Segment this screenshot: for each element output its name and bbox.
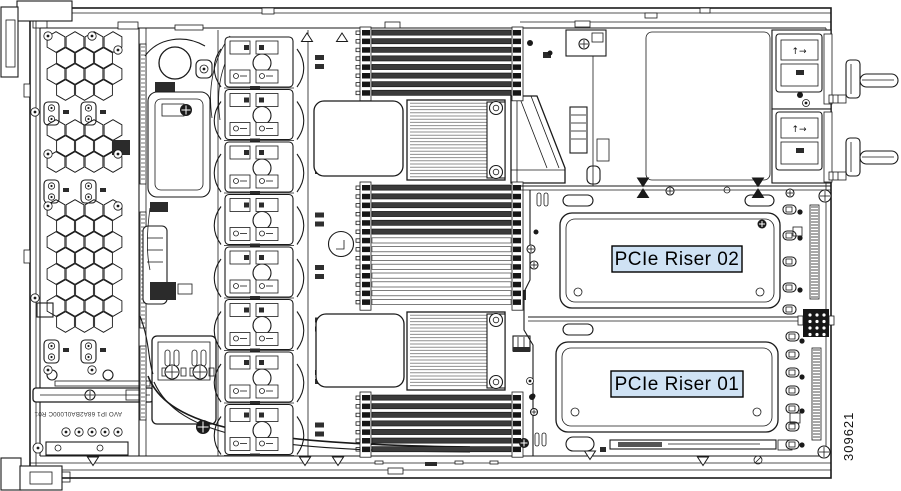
dimm-slot — [372, 220, 511, 225]
psu-2: ↑→ — [772, 109, 898, 183]
rear-slot — [786, 350, 799, 359]
blower-opening — [159, 47, 191, 79]
handling-slot — [563, 324, 593, 335]
bottom-bracket — [46, 442, 128, 455]
figure-number: 309621 — [841, 412, 856, 461]
psu-bay — [646, 30, 772, 183]
handling-slot — [563, 195, 593, 206]
screw — [527, 40, 533, 46]
triangle-marker — [300, 457, 311, 466]
dimm-slot — [372, 56, 511, 61]
dimm-slot — [372, 247, 511, 252]
dimm-bank — [356, 392, 523, 457]
dimm-slot — [372, 273, 511, 278]
cpu-socket-covers — [314, 101, 404, 387]
dimm-slot — [372, 255, 511, 260]
rear-screw — [797, 287, 802, 292]
rear-slot — [783, 283, 796, 292]
fan-connector — [315, 432, 324, 437]
fan-module — [214, 300, 304, 352]
dimm-bank — [356, 27, 523, 101]
pcie-riser-01: PCIe Riser 01 — [556, 342, 778, 432]
dimm-slot — [372, 211, 511, 216]
dimm-slot — [372, 64, 511, 69]
heatsink-screw — [490, 102, 503, 115]
rear-io-slots — [783, 205, 805, 449]
dimm-slot — [372, 90, 511, 95]
cpu-heatsink — [407, 100, 505, 180]
honeycomb-port — [803, 309, 829, 337]
fan-module — [214, 195, 304, 247]
rear-slot — [783, 305, 796, 314]
triangle-marker — [333, 457, 344, 466]
chassis-diagram: AVO IP1 68A2BA0L000C R01 — [0, 0, 901, 491]
fan-modules — [214, 37, 304, 457]
rear-screw — [797, 209, 802, 214]
dimm-slot — [372, 47, 511, 52]
cpu-heatsink — [407, 312, 505, 390]
psu-1: ↑→ — [772, 30, 898, 109]
fan-connector — [315, 64, 324, 69]
pcie-riser-02: PCIe Riser 02 — [560, 213, 780, 308]
riser01-bottom-slot-bar — [566, 437, 792, 464]
screw-boss — [44, 180, 59, 203]
rear-slot — [786, 332, 799, 341]
dimm-bank — [356, 182, 523, 310]
dimm-slot — [372, 282, 511, 287]
screw-hole — [97, 445, 103, 451]
dimm-slot — [372, 194, 511, 199]
triangle-marker — [302, 33, 313, 42]
psu1-handle — [829, 60, 898, 103]
screw — [534, 230, 539, 235]
air-duct — [511, 96, 565, 183]
dimm-slot — [372, 404, 511, 409]
fan-tray — [214, 30, 308, 457]
dimm-slot — [372, 39, 511, 44]
fan-connector — [315, 274, 324, 279]
dimm-slot — [372, 30, 511, 35]
hex-vent — [76, 80, 94, 101]
rear-port-honeycomb — [798, 309, 834, 337]
fan-connector — [315, 213, 324, 218]
fan-connector — [315, 423, 324, 428]
rear-screw — [799, 338, 804, 343]
psu1-airflow-icon: ↑→ — [791, 47, 807, 57]
hex-vent — [57, 80, 75, 101]
rear-slot — [783, 231, 796, 240]
screw-boss — [44, 340, 59, 363]
dimm-slot — [372, 412, 511, 417]
dimm-slot — [372, 299, 511, 304]
fan-connector — [315, 222, 324, 227]
heatsink-screw — [490, 166, 503, 179]
hex-vent — [66, 152, 84, 173]
rear-screw — [799, 374, 804, 379]
hex-vent — [85, 152, 103, 173]
fan-module — [214, 405, 304, 457]
cpu-socket-connector — [513, 336, 530, 352]
fan-module — [214, 352, 304, 404]
fan-module — [214, 247, 304, 299]
dimm-slot — [372, 82, 511, 87]
pcie-riser-area: PCIe Riser 02 PCIe Riser 01 — [520, 186, 834, 464]
dimm-slot — [372, 421, 511, 426]
triangle-marker — [585, 451, 596, 460]
dimm-slot — [372, 438, 511, 443]
rear-slot — [786, 440, 799, 449]
dimm-slot — [372, 264, 511, 269]
screw — [797, 92, 803, 98]
board-edge — [524, 190, 533, 456]
fan-module — [214, 37, 304, 89]
dimm-slot — [372, 73, 511, 78]
triangle-marker — [88, 457, 99, 466]
triangle-marker — [337, 33, 348, 42]
triangle-marker — [638, 178, 649, 187]
screw-boss — [81, 340, 96, 363]
board-marking-text: AVO IP1 68A2BA0L000C R01 — [34, 410, 122, 417]
cpu-heatsinks — [407, 100, 505, 390]
dimm-slot — [372, 291, 511, 296]
psu2-airflow-icon: ↑→ — [791, 125, 807, 135]
triangle-marker — [698, 457, 709, 466]
riser01-label: PCIe Riser 01 — [615, 374, 740, 395]
rear-slot — [783, 257, 796, 266]
heatsink-screw — [490, 376, 503, 389]
heatsink-screw — [490, 314, 503, 327]
dimm-slot — [372, 185, 511, 190]
dimm-banks — [356, 27, 523, 457]
rear-slot — [786, 404, 799, 413]
fan-connector — [315, 55, 324, 60]
triangle-marker — [753, 178, 764, 187]
dimm-slot — [372, 238, 511, 243]
dimm-slot — [372, 395, 511, 400]
riser02-label: PCIe Riser 02 — [615, 249, 740, 270]
screw — [548, 51, 553, 56]
dimm-slot — [372, 203, 511, 208]
alignment-circle — [329, 232, 354, 257]
dimm-slot — [372, 447, 511, 452]
fan-connector — [315, 265, 324, 270]
hex-vent — [95, 80, 113, 101]
rear-slot — [786, 368, 799, 377]
dimm-slot — [372, 229, 511, 234]
rear-slot — [783, 205, 796, 214]
rear-screw — [799, 442, 804, 447]
screw-hole — [55, 445, 61, 451]
psu2-handle — [829, 138, 898, 180]
rear-slot — [786, 386, 799, 395]
dimm-slot — [372, 429, 511, 434]
thumbscrew-module — [152, 336, 216, 424]
fan-module — [214, 142, 304, 194]
supercap-module — [148, 92, 210, 197]
fan-module — [214, 90, 304, 142]
screw — [531, 394, 536, 399]
connector-block — [150, 282, 176, 300]
